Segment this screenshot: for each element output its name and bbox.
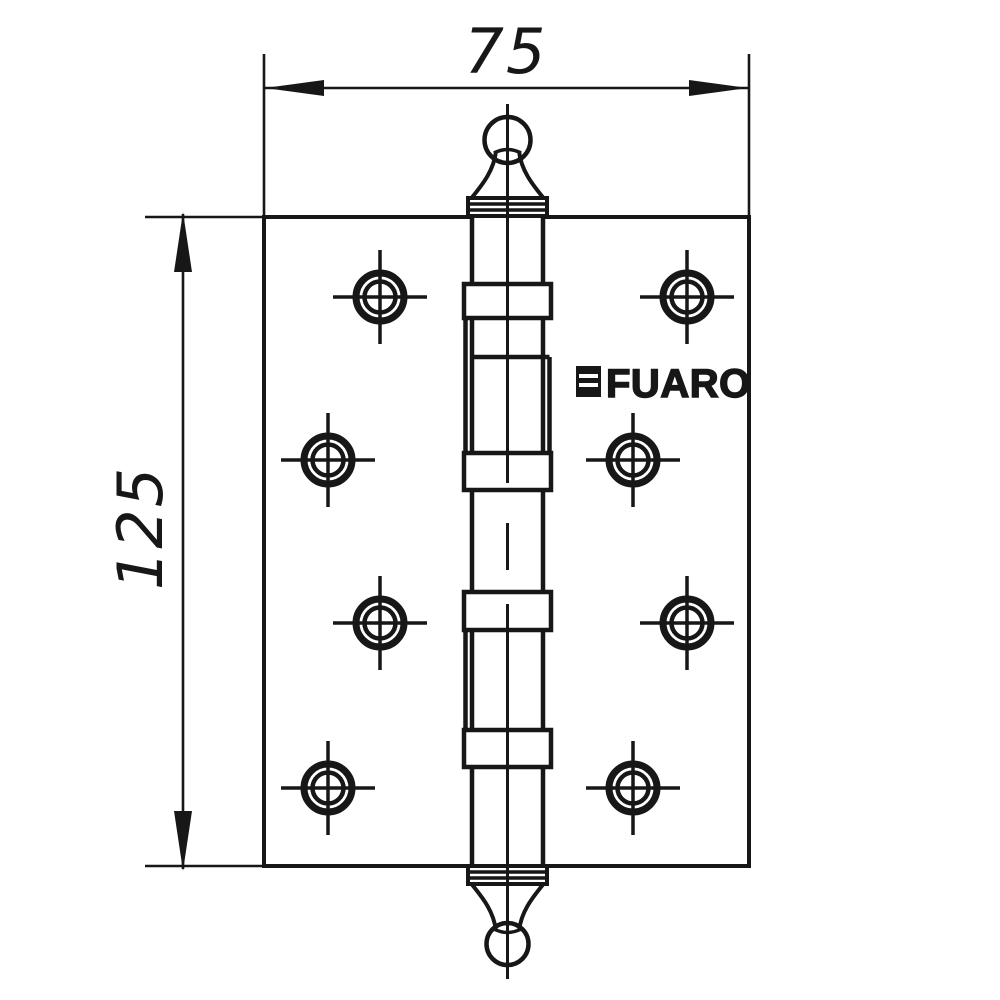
screw-hole-icon bbox=[586, 413, 680, 507]
dimension-arrow-right-icon bbox=[689, 80, 748, 96]
bottom-finial-bell-left bbox=[472, 884, 497, 931]
fuaro-logo-mark-slit-1 bbox=[579, 374, 598, 378]
bottom-finial-bell-right bbox=[519, 884, 544, 931]
screw-hole-icon bbox=[640, 250, 734, 344]
dimension-arrow-up-icon bbox=[174, 212, 192, 272]
hinge-technical-drawing: 75 125 bbox=[0, 0, 1000, 1000]
width-dimension-label: 75 bbox=[465, 15, 548, 88]
screw-hole-icon bbox=[281, 741, 375, 835]
technical-drawing-canvas: 75 125 bbox=[0, 0, 1000, 1000]
screw-hole-icon bbox=[586, 741, 680, 835]
fuaro-logo-text: FUARO bbox=[606, 362, 751, 406]
height-dimension-label: 125 bbox=[104, 466, 177, 590]
screw-hole-icon bbox=[281, 413, 375, 507]
fuaro-logo: FUARO bbox=[576, 362, 751, 406]
screw-hole-icon bbox=[333, 250, 427, 344]
fuaro-logo-mark-slit-2 bbox=[579, 383, 598, 387]
dimension-arrow-down-icon bbox=[174, 811, 192, 871]
dimension-arrow-left-icon bbox=[265, 80, 324, 96]
screw-hole-icon bbox=[333, 576, 427, 670]
screw-hole-icon bbox=[640, 576, 734, 670]
fuaro-logo-mark-icon bbox=[576, 366, 601, 397]
